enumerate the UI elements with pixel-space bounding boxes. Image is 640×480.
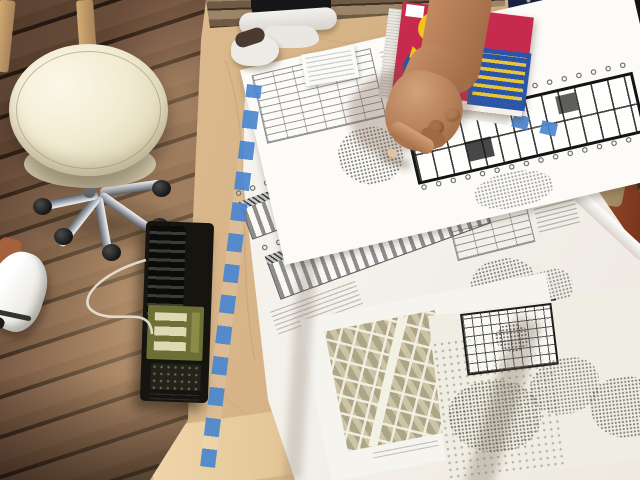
knuckle: [445, 108, 460, 122]
controller: [231, 34, 279, 66]
caster-wheel: [33, 198, 52, 215]
photo-scene: S: [0, 0, 640, 480]
spine-sticker: [405, 4, 424, 18]
power-cable: [68, 242, 198, 352]
landscape-plan-sheet: [428, 289, 640, 480]
stool-seat: [9, 44, 168, 176]
radio-grille: [150, 363, 201, 391]
caster-wheel: [152, 180, 171, 197]
radio-label: [149, 391, 199, 401]
